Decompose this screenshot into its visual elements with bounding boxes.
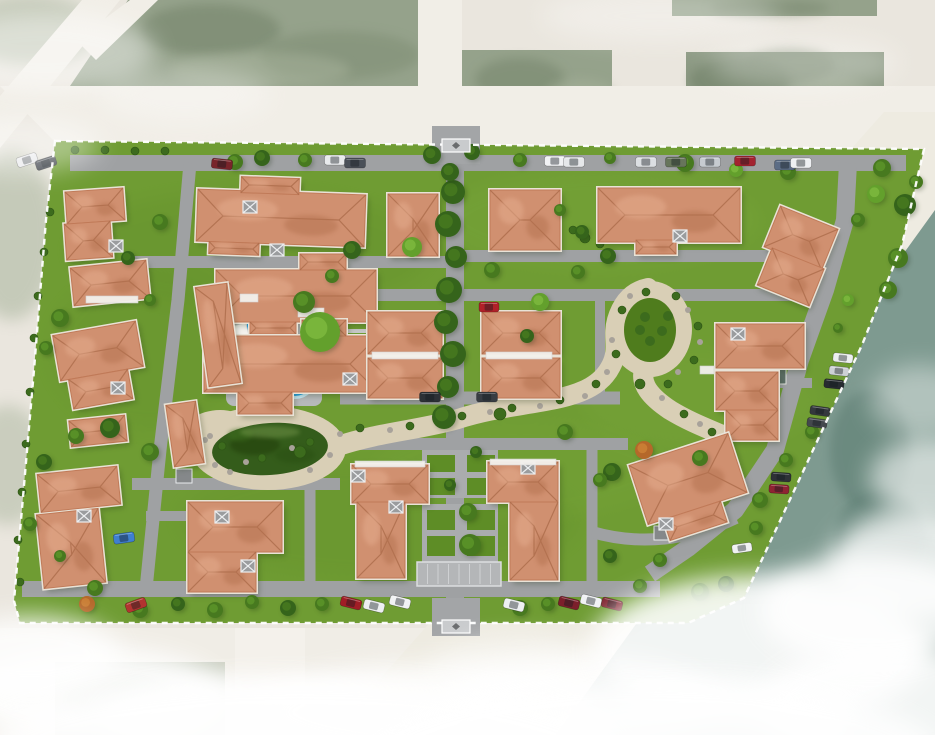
car-cabin [550, 157, 559, 164]
mound-shrub [657, 326, 667, 336]
car-cabin [485, 303, 493, 310]
shrub [672, 292, 680, 300]
shrub [635, 379, 645, 389]
car-cabin [350, 159, 359, 166]
car [700, 157, 721, 167]
tree-highlight [327, 271, 335, 279]
roof-texture [324, 261, 339, 267]
roof-texture [723, 377, 745, 394]
roof-texture [748, 388, 768, 403]
car [345, 158, 366, 168]
roof-texture [306, 256, 323, 263]
tree-highlight [444, 344, 458, 358]
landscape-rock [487, 409, 493, 415]
landscape-rock [697, 339, 703, 345]
tree-highlight [533, 295, 543, 305]
shrub [356, 424, 364, 432]
shrub [161, 147, 169, 155]
landscape-rock [207, 433, 213, 439]
car-cabin [330, 156, 339, 163]
mound-shrub [663, 311, 673, 321]
tree-highlight [300, 155, 308, 163]
shrub [406, 422, 414, 430]
plaza-lawn-square [427, 510, 455, 530]
shrub [618, 306, 626, 314]
roof-texture [753, 423, 770, 435]
utility-box [176, 469, 192, 483]
car-cabin [569, 158, 578, 165]
tree-highlight [41, 343, 49, 351]
car [636, 157, 657, 167]
plaza-lawn-square [427, 536, 455, 556]
tree-highlight [282, 602, 291, 611]
roof-texture [363, 512, 380, 545]
landscape-rock [582, 393, 588, 399]
site-plan-rendering [0, 0, 935, 735]
tree-highlight [154, 216, 163, 225]
shrub [258, 454, 266, 462]
shrub [708, 428, 716, 436]
tree-highlight [81, 598, 90, 607]
roof-texture [377, 317, 404, 335]
tree-highlight [448, 249, 460, 261]
tree-highlight [559, 426, 568, 435]
shrub [306, 438, 314, 446]
tree-highlight [437, 313, 450, 326]
tree-highlight [123, 253, 131, 261]
tree-highlight [694, 452, 703, 461]
tree-highlight [462, 537, 474, 549]
landscape-rock [659, 395, 665, 401]
tree-highlight [595, 475, 603, 483]
tree-highlight [405, 240, 416, 251]
shrub [101, 146, 109, 154]
plaza-lawn-square [427, 455, 455, 472]
terrain-mottle [140, 4, 280, 56]
car [564, 157, 585, 167]
tree-highlight [655, 555, 663, 563]
roof-texture [491, 317, 519, 335]
landscape-rock [537, 403, 543, 409]
tree-highlight [807, 427, 815, 435]
tree-highlight [256, 152, 265, 161]
tree-highlight [605, 465, 615, 475]
car [479, 302, 499, 312]
building [488, 188, 563, 254]
tree-highlight [425, 148, 435, 158]
car [666, 157, 687, 167]
roof-texture [294, 360, 350, 382]
tree-highlight [53, 311, 63, 321]
mound-lawn [624, 298, 676, 362]
landscape-rock [212, 462, 218, 468]
car [420, 392, 441, 402]
tree-highlight [440, 280, 454, 294]
tree-highlight [543, 599, 551, 607]
shrub [680, 410, 688, 418]
tree-highlight [897, 197, 909, 209]
tree-highlight [844, 296, 851, 303]
balcony-canopy [490, 459, 556, 465]
shrub [592, 380, 600, 388]
mound-shrub [640, 312, 650, 322]
car [477, 392, 498, 402]
landscape-rock [327, 452, 333, 458]
shrub [642, 288, 650, 296]
balcony-canopy [372, 352, 438, 359]
balcony-canopy [700, 366, 714, 374]
shrub [458, 412, 466, 420]
landscape-rock [627, 293, 633, 299]
tree-highlight [751, 523, 759, 531]
roof-texture [256, 323, 273, 329]
landscape-rock [337, 431, 343, 437]
shrub [14, 536, 22, 544]
roof-texture [406, 375, 430, 391]
roof-texture [523, 375, 548, 391]
tree-highlight [605, 551, 613, 559]
tree-highlight [522, 331, 530, 339]
tree-highlight [173, 599, 181, 607]
car-cabin [774, 486, 783, 493]
car-cabin [740, 157, 749, 164]
shrub [508, 404, 516, 412]
tree-highlight [247, 597, 255, 605]
car [791, 158, 812, 168]
tree-highlight [103, 421, 114, 432]
tree-highlight [472, 448, 479, 455]
roof-texture [526, 215, 548, 239]
tree-highlight [70, 430, 79, 439]
tree-highlight [573, 267, 581, 275]
roof-texture [516, 512, 533, 546]
tree-highlight [146, 296, 153, 303]
roof-texture [491, 363, 519, 381]
tree-highlight [143, 445, 153, 455]
tree-highlight [25, 519, 33, 527]
shrub [612, 350, 620, 358]
shrub [694, 322, 702, 330]
tree-highlight [444, 183, 457, 196]
tree-highlight [345, 243, 355, 253]
tree-highlight [56, 552, 63, 559]
car-cabin [796, 159, 805, 166]
tree-highlight [486, 264, 495, 273]
tree-highlight [446, 481, 453, 488]
roof-texture [196, 557, 220, 575]
tree-highlight [435, 408, 448, 421]
tree-highlight [875, 161, 885, 171]
cloud [100, 69, 270, 121]
tree-highlight [461, 505, 471, 515]
car [771, 472, 792, 482]
tree-highlight [853, 215, 861, 223]
shrub [294, 446, 306, 458]
tree-highlight [440, 379, 452, 391]
balcony-canopy [355, 461, 425, 467]
car-cabin [482, 393, 491, 400]
mound-shrub [635, 325, 645, 335]
tree-highlight [317, 599, 325, 607]
roof-texture [266, 401, 283, 410]
tree-highlight [577, 227, 585, 235]
mound-shrub [645, 336, 655, 346]
tree-highlight [305, 317, 327, 339]
roof-texture [762, 342, 790, 360]
cloud [710, 36, 900, 88]
car [829, 365, 850, 376]
car-cabin [776, 474, 785, 481]
car [833, 352, 854, 363]
shrub [664, 380, 672, 388]
tree-highlight [439, 214, 453, 228]
tree-highlight [556, 206, 563, 213]
roof-texture [406, 330, 430, 347]
car [769, 484, 790, 494]
car [545, 156, 566, 166]
landscape-rock [387, 427, 393, 433]
landscape-rock [685, 307, 691, 313]
tree-highlight [606, 154, 613, 161]
balcony-canopy [240, 294, 258, 302]
roof-texture [392, 481, 416, 496]
shrub [131, 147, 139, 155]
landscape-rock [675, 369, 681, 375]
site-plan [0, 0, 935, 735]
tree-highlight [781, 455, 789, 463]
roof-texture [524, 479, 546, 495]
tree-highlight [635, 581, 643, 589]
landscape-rock [307, 467, 313, 473]
roof-texture [672, 211, 717, 233]
tree-highlight [443, 165, 453, 175]
pond-texture [240, 426, 300, 438]
tree-highlight [515, 155, 523, 163]
car-cabin [425, 393, 434, 400]
car-cabin [217, 160, 227, 168]
car [735, 156, 756, 166]
tree-highlight [911, 177, 919, 185]
car-cabin [705, 158, 714, 165]
tree-highlight [38, 456, 47, 465]
balcony-canopy [86, 296, 138, 303]
landscape-rock [243, 459, 249, 465]
car [325, 155, 346, 165]
landscape-rock [604, 369, 610, 375]
tree-highlight [89, 582, 98, 591]
roof-texture [496, 467, 521, 485]
shrub [218, 442, 226, 450]
shrub [16, 578, 24, 586]
roof-texture [732, 414, 751, 427]
roof-texture [394, 202, 412, 229]
exterior-road-vertical-top [418, 0, 462, 90]
tree-highlight [602, 250, 611, 259]
roof-texture [615, 195, 666, 219]
car-cabin [641, 158, 650, 165]
roof-texture [274, 326, 289, 332]
roof-texture [657, 246, 670, 252]
roof-texture [244, 395, 263, 405]
shrub [494, 408, 506, 420]
roof-texture [237, 523, 267, 543]
roof-texture [382, 534, 397, 564]
car [211, 158, 233, 170]
roof-texture [498, 198, 523, 224]
car-cabin [671, 158, 680, 165]
tree-highlight [296, 294, 308, 306]
landscape-rock [609, 337, 615, 343]
tree-highlight [209, 604, 218, 613]
landscape-rock [227, 469, 233, 475]
landscape-rock [697, 421, 703, 427]
tree-highlight [834, 324, 840, 330]
roof-texture [377, 363, 404, 381]
tree-highlight [637, 443, 647, 453]
car-cabin [780, 161, 789, 168]
roof-texture [641, 242, 655, 248]
shrub [690, 356, 698, 364]
roof-texture [535, 535, 550, 566]
tree-highlight [869, 187, 879, 197]
balcony-canopy [486, 352, 552, 359]
tree-highlight [754, 494, 763, 503]
